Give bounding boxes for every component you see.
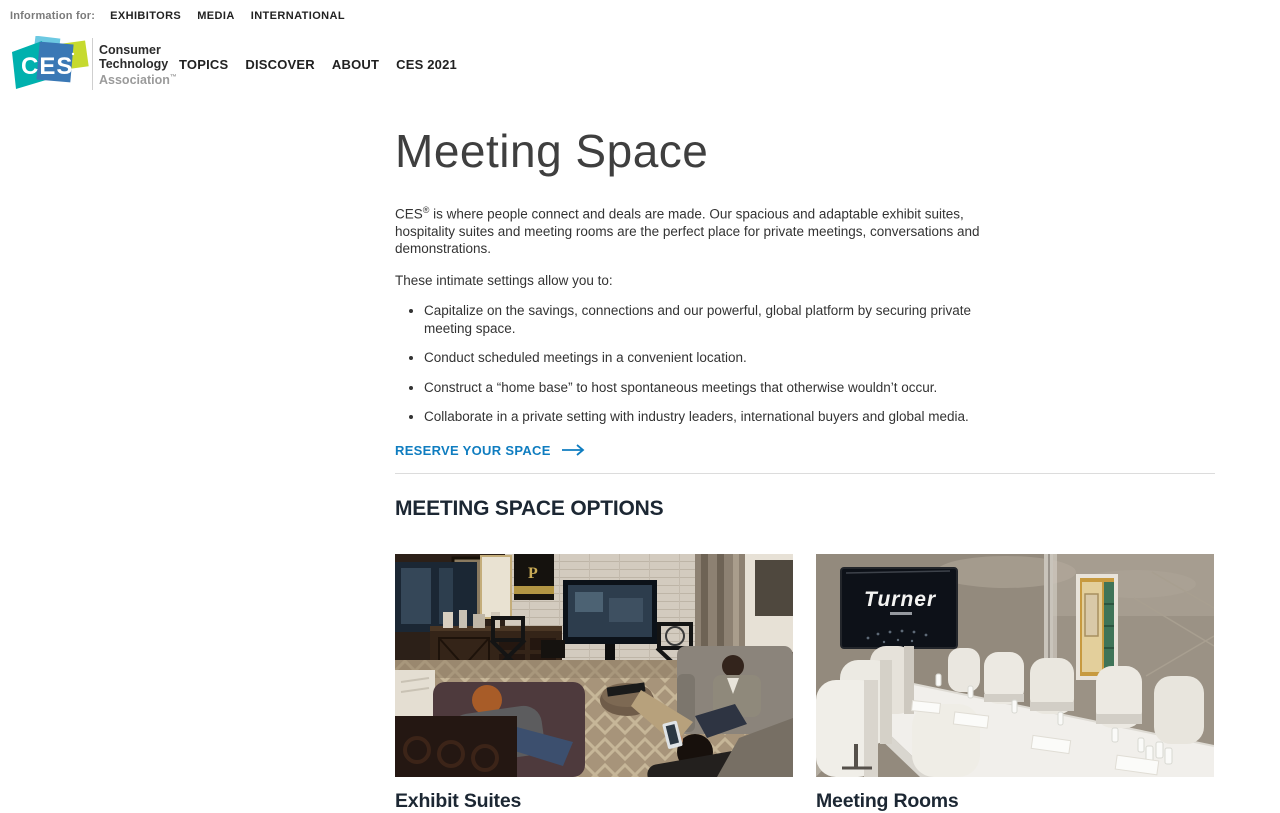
ces-logo[interactable]: CES <box>10 36 92 92</box>
card-exhibit-suites: P <box>395 554 793 813</box>
main-content: Meeting Space CES® is where people conne… <box>395 125 1215 813</box>
card-title-meeting-rooms[interactable]: Meeting Rooms <box>816 790 1214 813</box>
sofa-and-woman <box>677 646 793 738</box>
list-item: Conduct scheduled meetings in a convenie… <box>424 349 980 367</box>
plaque-letter: P <box>528 565 538 582</box>
utility-bar-label: Information for: <box>10 10 95 22</box>
main-nav: TOPICS DISCOVER ABOUT CES 2021 <box>179 56 474 74</box>
turner-screen-text: Turner <box>864 588 937 611</box>
ces-logo-text: CES <box>21 53 73 80</box>
reserve-your-space-link[interactable]: RESERVE YOUR SPACE <box>395 443 587 458</box>
list-item: Capitalize on the savings, connections a… <box>424 302 980 337</box>
nav-item-about[interactable]: ABOUT <box>332 56 379 74</box>
exhibit-suites-photo[interactable]: P <box>395 554 793 777</box>
suite-plaque: P <box>514 554 554 600</box>
benefits-list: Capitalize on the savings, connections a… <box>395 302 980 426</box>
topbar-link-exhibitors[interactable]: EXHIBITORS <box>110 10 181 22</box>
org-line1: Consumer <box>99 43 177 57</box>
topbar-link-international[interactable]: INTERNATIONAL <box>251 10 345 22</box>
reserve-your-space-label: RESERVE YOUR SPACE <box>395 443 551 458</box>
section-heading: MEETING SPACE OPTIONS <box>395 497 1215 521</box>
lead-in-paragraph: These intimate settings allow you to: <box>395 272 980 290</box>
arrow-right-icon <box>562 444 587 456</box>
utility-bar: Information for: EXHIBITORS MEDIA INTERN… <box>10 10 358 22</box>
doorway <box>1076 574 1118 680</box>
card-meeting-rooms: Turner <box>816 554 1214 813</box>
topbar-link-media[interactable]: MEDIA <box>197 10 234 22</box>
nav-item-ces2021[interactable]: CES 2021 <box>396 56 457 74</box>
nav-item-topics[interactable]: TOPICS <box>179 56 228 74</box>
org-line2: Technology <box>99 57 177 71</box>
logo-divider <box>92 38 93 90</box>
org-line3: Association™ <box>99 71 177 87</box>
org-wordmark: Consumer Technology Association™ <box>99 43 177 87</box>
page-title: Meeting Space <box>395 125 1215 178</box>
nav-item-discover[interactable]: DISCOVER <box>245 56 315 74</box>
section-divider <box>395 473 1215 474</box>
list-item: Collaborate in a private setting with in… <box>424 408 980 426</box>
meeting-rooms-photo[interactable]: Turner <box>816 554 1214 777</box>
list-item: Construct a “home base” to host spontane… <box>424 379 980 397</box>
meeting-space-cards: P <box>395 554 1215 813</box>
intro-paragraph: CES® is where people connect and deals a… <box>395 202 980 258</box>
turner-tv-screen: Turner <box>841 568 957 648</box>
card-title-exhibit-suites[interactable]: Exhibit Suites <box>395 790 793 813</box>
